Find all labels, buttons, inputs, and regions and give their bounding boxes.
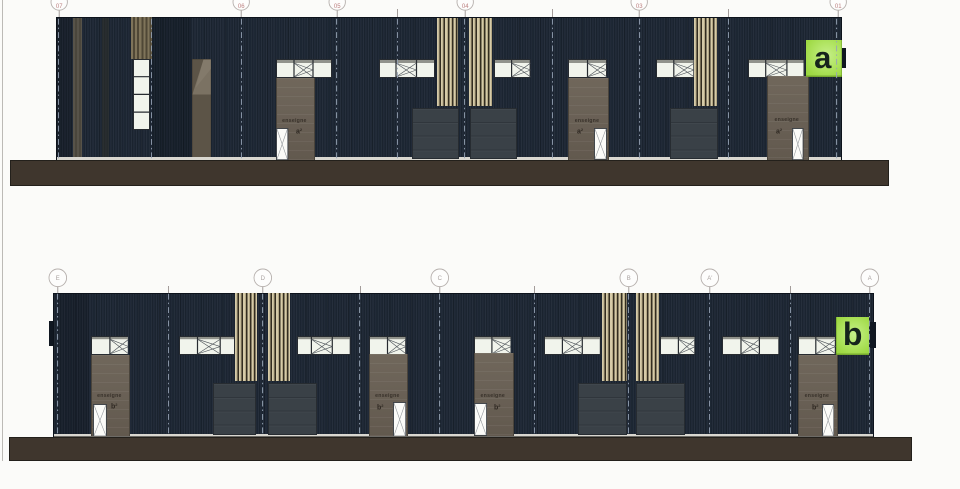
svg-text:07: 07	[55, 4, 62, 10]
svg-text:A: A	[868, 275, 872, 281]
svg-text:01: 01	[835, 4, 842, 10]
svg-text:05: 05	[334, 4, 341, 10]
svg-text:03: 03	[635, 4, 642, 10]
svg-text:D: D	[261, 275, 266, 281]
svg-text:04: 04	[462, 4, 469, 10]
svg-text:06: 06	[238, 4, 245, 10]
svg-text:C: C	[438, 275, 443, 281]
svg-text:E: E	[55, 275, 59, 281]
svg-text:A': A'	[707, 275, 712, 281]
svg-text:B: B	[626, 275, 630, 281]
